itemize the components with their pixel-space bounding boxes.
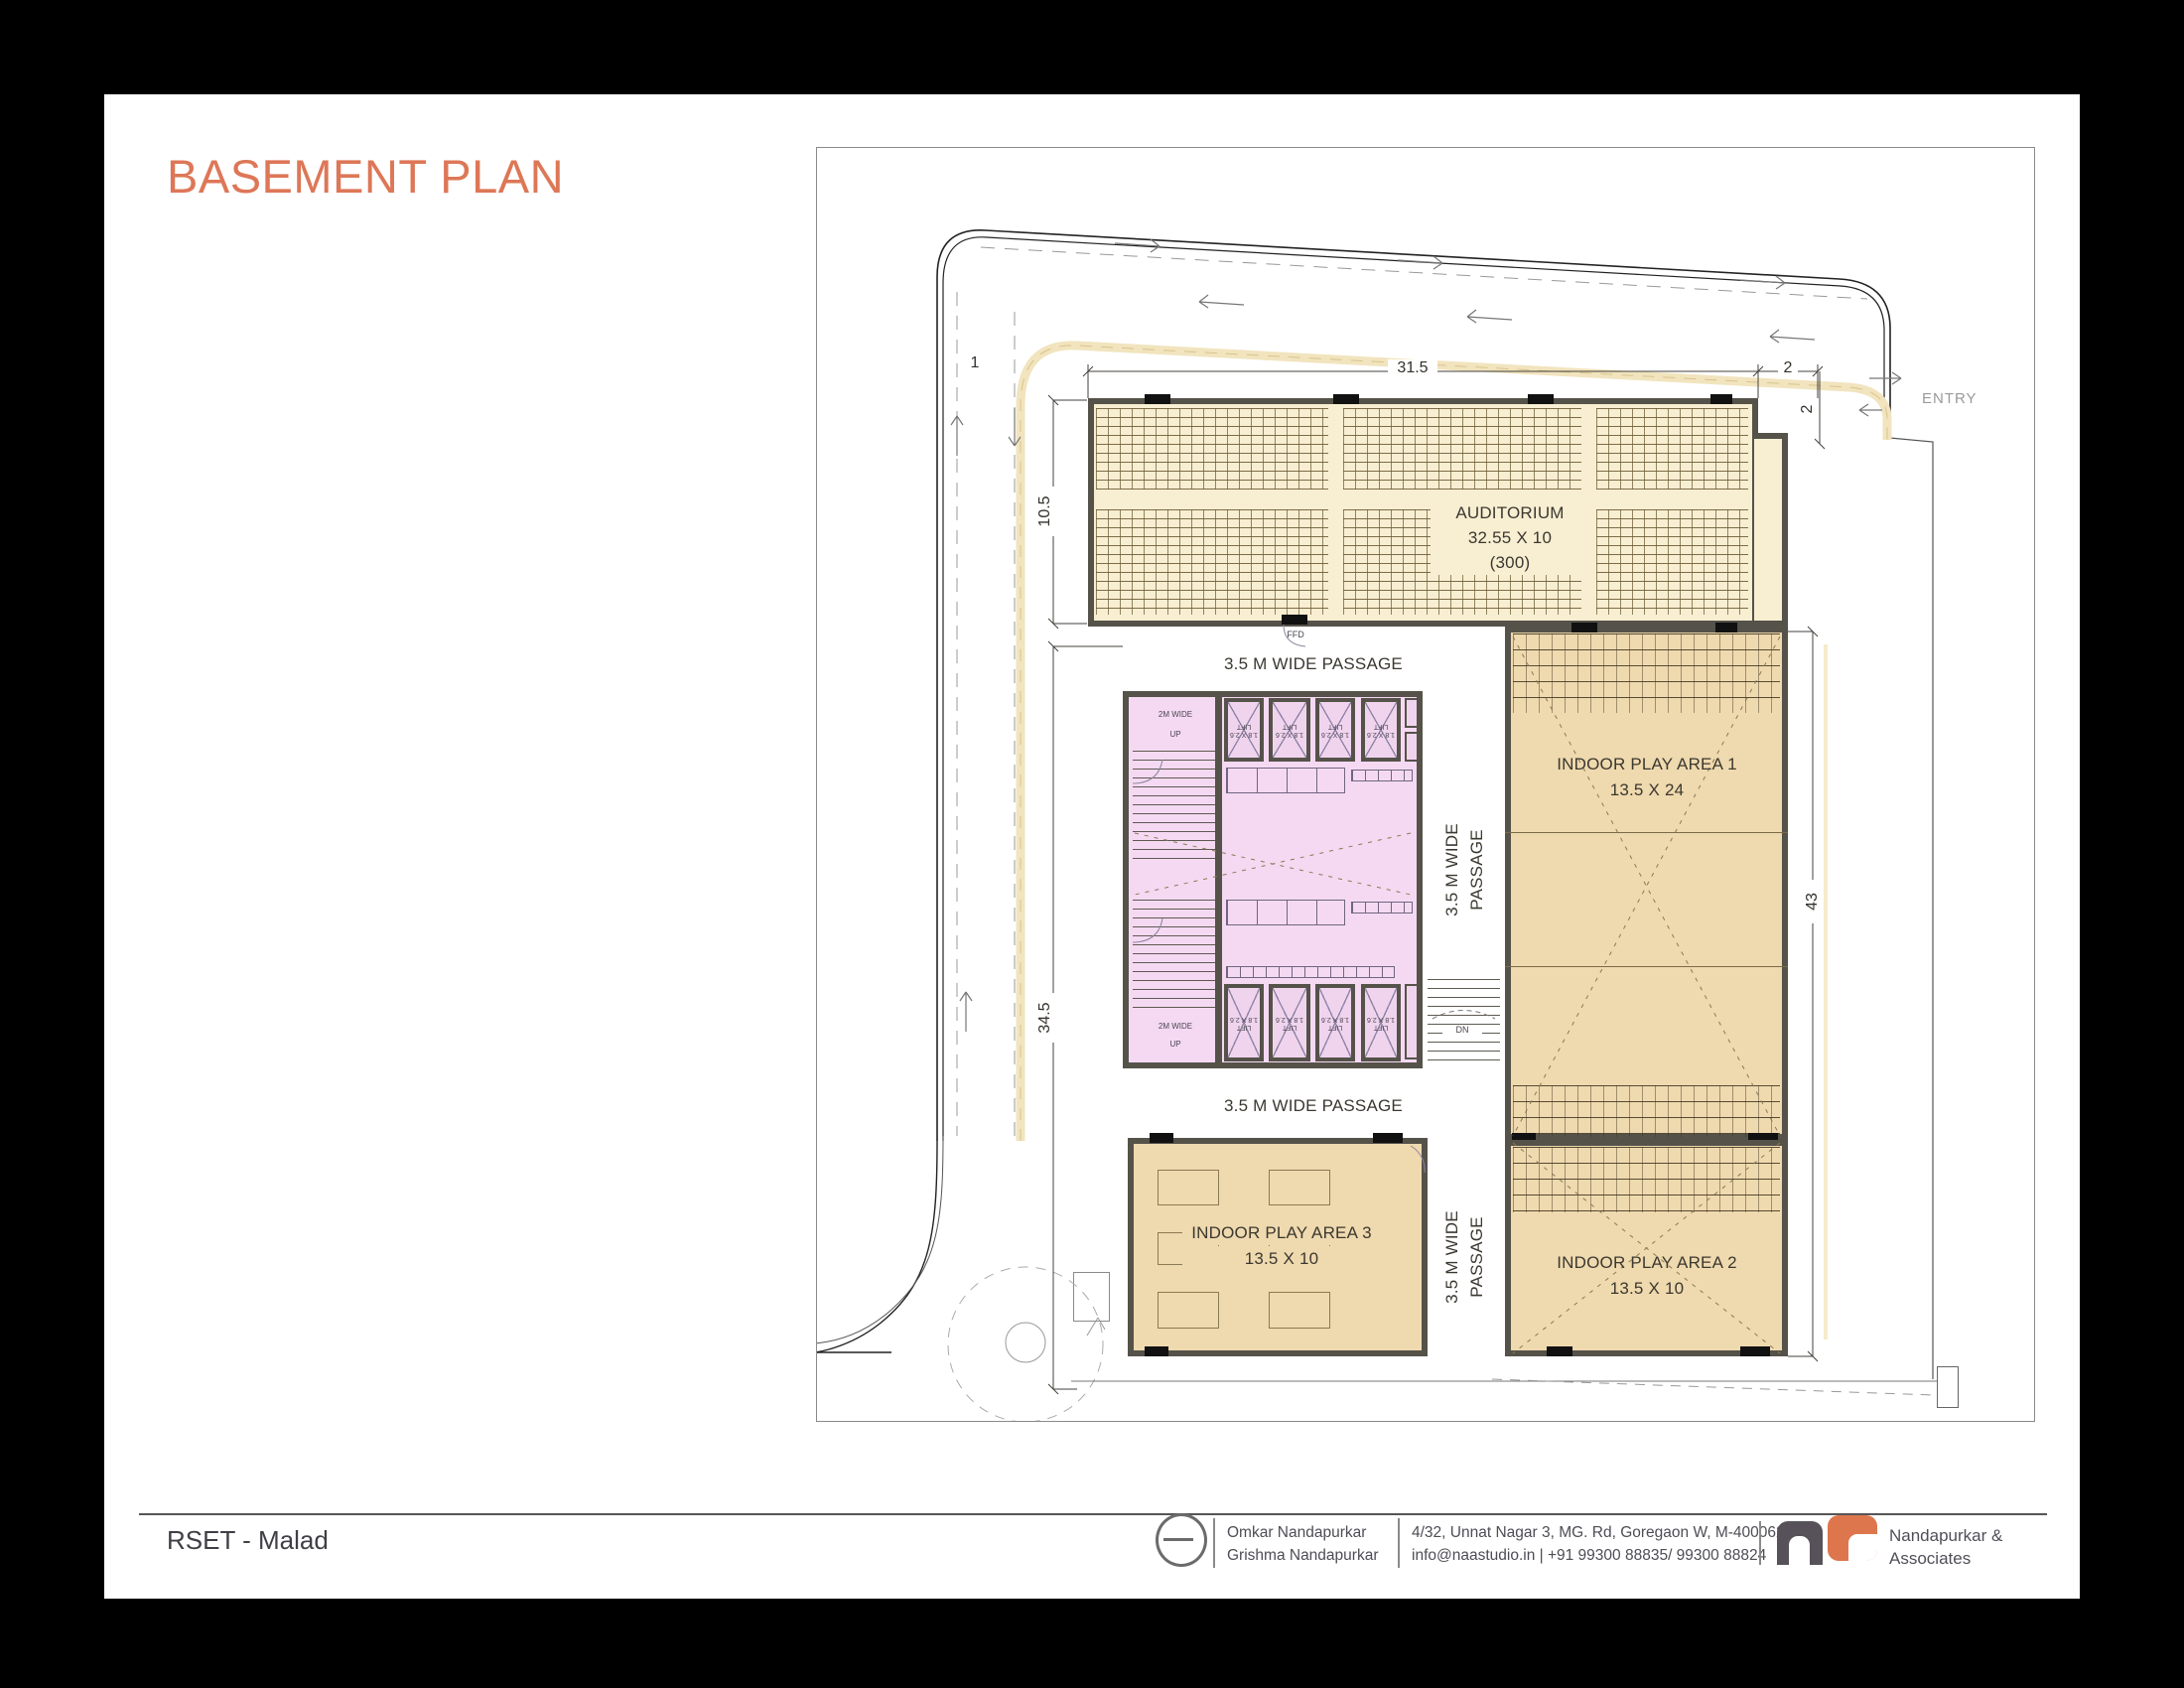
dim-top-width: 31.5 bbox=[1388, 359, 1437, 377]
dim-right-height: 43 bbox=[1804, 880, 1822, 923]
footer-address: 4/32, Unnat Nagar 3, MG. Rd, Goregaon W,… bbox=[1412, 1521, 1785, 1567]
footer-divider bbox=[1213, 1518, 1215, 1568]
play-area-3-size: 13.5 X 10 bbox=[1182, 1246, 1381, 1271]
passage-bottom-label: 3.5 M WIDE PASSAGE bbox=[1214, 1093, 1413, 1118]
brand-name: Nandapurkar & Associates bbox=[1889, 1524, 2002, 1570]
footer-divider bbox=[1759, 1521, 1761, 1565]
passage-top-label: 3.5 M WIDE PASSAGE bbox=[1214, 651, 1413, 676]
footer-divider bbox=[1398, 1518, 1400, 1568]
play-area-1-name: INDOOR PLAY AREA 1 bbox=[1548, 752, 1746, 776]
address-line-2: info@naastudio.in | +91 99300 88835/ 993… bbox=[1412, 1544, 1785, 1567]
studio-mark-icon bbox=[1156, 1513, 1207, 1567]
brand-line-2: Associates bbox=[1889, 1547, 2002, 1570]
auditorium-label: AUDITORIUM 32.55 X 10 (300) bbox=[1431, 500, 1589, 575]
plan-sheet: 2M WIDE UP 2M WIDE UP 1.8 X 2.6LIFT 1.8 … bbox=[816, 147, 2035, 1422]
dim-left-height: 34.5 bbox=[1036, 993, 1054, 1043]
architect-2: Grishma Nandapurkar bbox=[1227, 1544, 1378, 1567]
ffd-door-label: FFD bbox=[1276, 631, 1315, 639]
play-area-2-name: INDOOR PLAY AREA 2 bbox=[1548, 1250, 1746, 1275]
brand-logo-c-notch bbox=[1848, 1534, 1877, 1561]
footer-rule bbox=[139, 1513, 2047, 1515]
auditorium-size: 32.55 X 10 bbox=[1431, 525, 1589, 550]
slide-frame: BASEMENT PLAN 2M WIDE UP 2M WIDE UP bbox=[0, 0, 2184, 1688]
brand-line-1: Nandapurkar & bbox=[1889, 1524, 2002, 1547]
play-area-2-size: 13.5 X 10 bbox=[1548, 1276, 1746, 1301]
brand-logo-c-icon bbox=[1828, 1515, 1877, 1561]
footer-architects: Omkar Nandapurkar Grishma Nandapurkar bbox=[1227, 1521, 1378, 1567]
dim-auditorium-depth: 10.5 bbox=[1036, 487, 1054, 536]
entry-label: ENTRY bbox=[1922, 390, 1978, 407]
slide: BASEMENT PLAN 2M WIDE UP 2M WIDE UP bbox=[104, 94, 2080, 1599]
play-area-1-size: 13.5 X 24 bbox=[1548, 777, 1746, 802]
page-title: BASEMENT PLAN bbox=[167, 149, 564, 204]
brand-logo-n-notch bbox=[1789, 1536, 1810, 1565]
dim-entry-width: 2 bbox=[1799, 399, 1817, 419]
studio-mark-bar bbox=[1163, 1538, 1193, 1541]
brand-logo-n-icon bbox=[1777, 1521, 1823, 1565]
auditorium-capacity: (300) bbox=[1431, 550, 1589, 575]
dim-left-top: 1 bbox=[966, 354, 984, 372]
play-area-3-name: INDOOR PLAY AREA 3 bbox=[1182, 1220, 1381, 1245]
dim-top-offset: 2 bbox=[1778, 359, 1798, 377]
auditorium-name: AUDITORIUM bbox=[1431, 500, 1589, 525]
passage-vertical-upper-label: 3.5 M WIDE PASSAGE bbox=[1439, 788, 1489, 951]
plan-linework bbox=[817, 148, 2034, 1421]
footer-project: RSET - Malad bbox=[167, 1525, 329, 1556]
passage-vertical-lower-label: 3.5 M WIDE PASSAGE bbox=[1439, 1176, 1489, 1338]
address-line-1: 4/32, Unnat Nagar 3, MG. Rd, Goregaon W,… bbox=[1412, 1521, 1785, 1544]
architect-1: Omkar Nandapurkar bbox=[1227, 1521, 1378, 1544]
